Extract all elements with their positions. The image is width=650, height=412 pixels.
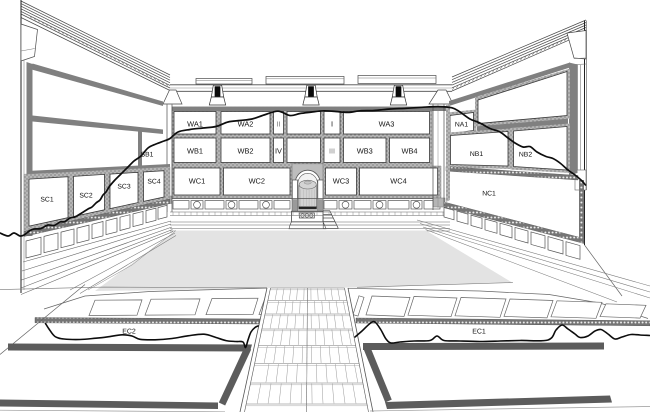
svg-text:WB4: WB4 [401,147,417,156]
svg-text:EC1: EC1 [472,329,486,336]
svg-text:I: I [331,120,333,129]
svg-text:WA3: WA3 [379,120,395,129]
svg-text:SC2: SC2 [79,193,92,200]
svg-text:IV: IV [275,147,282,156]
svg-text:SC4: SC4 [147,179,160,186]
svg-text:WC1: WC1 [189,177,205,186]
svg-text:WB1: WB1 [187,147,203,156]
svg-text:NC1: NC1 [482,190,496,197]
svg-text:WA1: WA1 [187,120,203,129]
svg-text:WC2: WC2 [249,177,265,186]
svg-text:WC4: WC4 [390,177,406,186]
svg-text:WB3: WB3 [357,147,373,156]
svg-text:EC2: EC2 [122,329,136,336]
svg-text:II: II [277,120,281,129]
svg-text:WC3: WC3 [333,177,349,186]
svg-text:SC3: SC3 [117,184,130,191]
svg-text:III: III [329,147,335,156]
svg-text:NB1: NB1 [470,151,483,158]
svg-text:SC1: SC1 [40,197,53,204]
svg-text:NA1: NA1 [455,122,468,129]
svg-text:WB2: WB2 [237,147,253,156]
svg-text:NB2: NB2 [519,152,532,159]
